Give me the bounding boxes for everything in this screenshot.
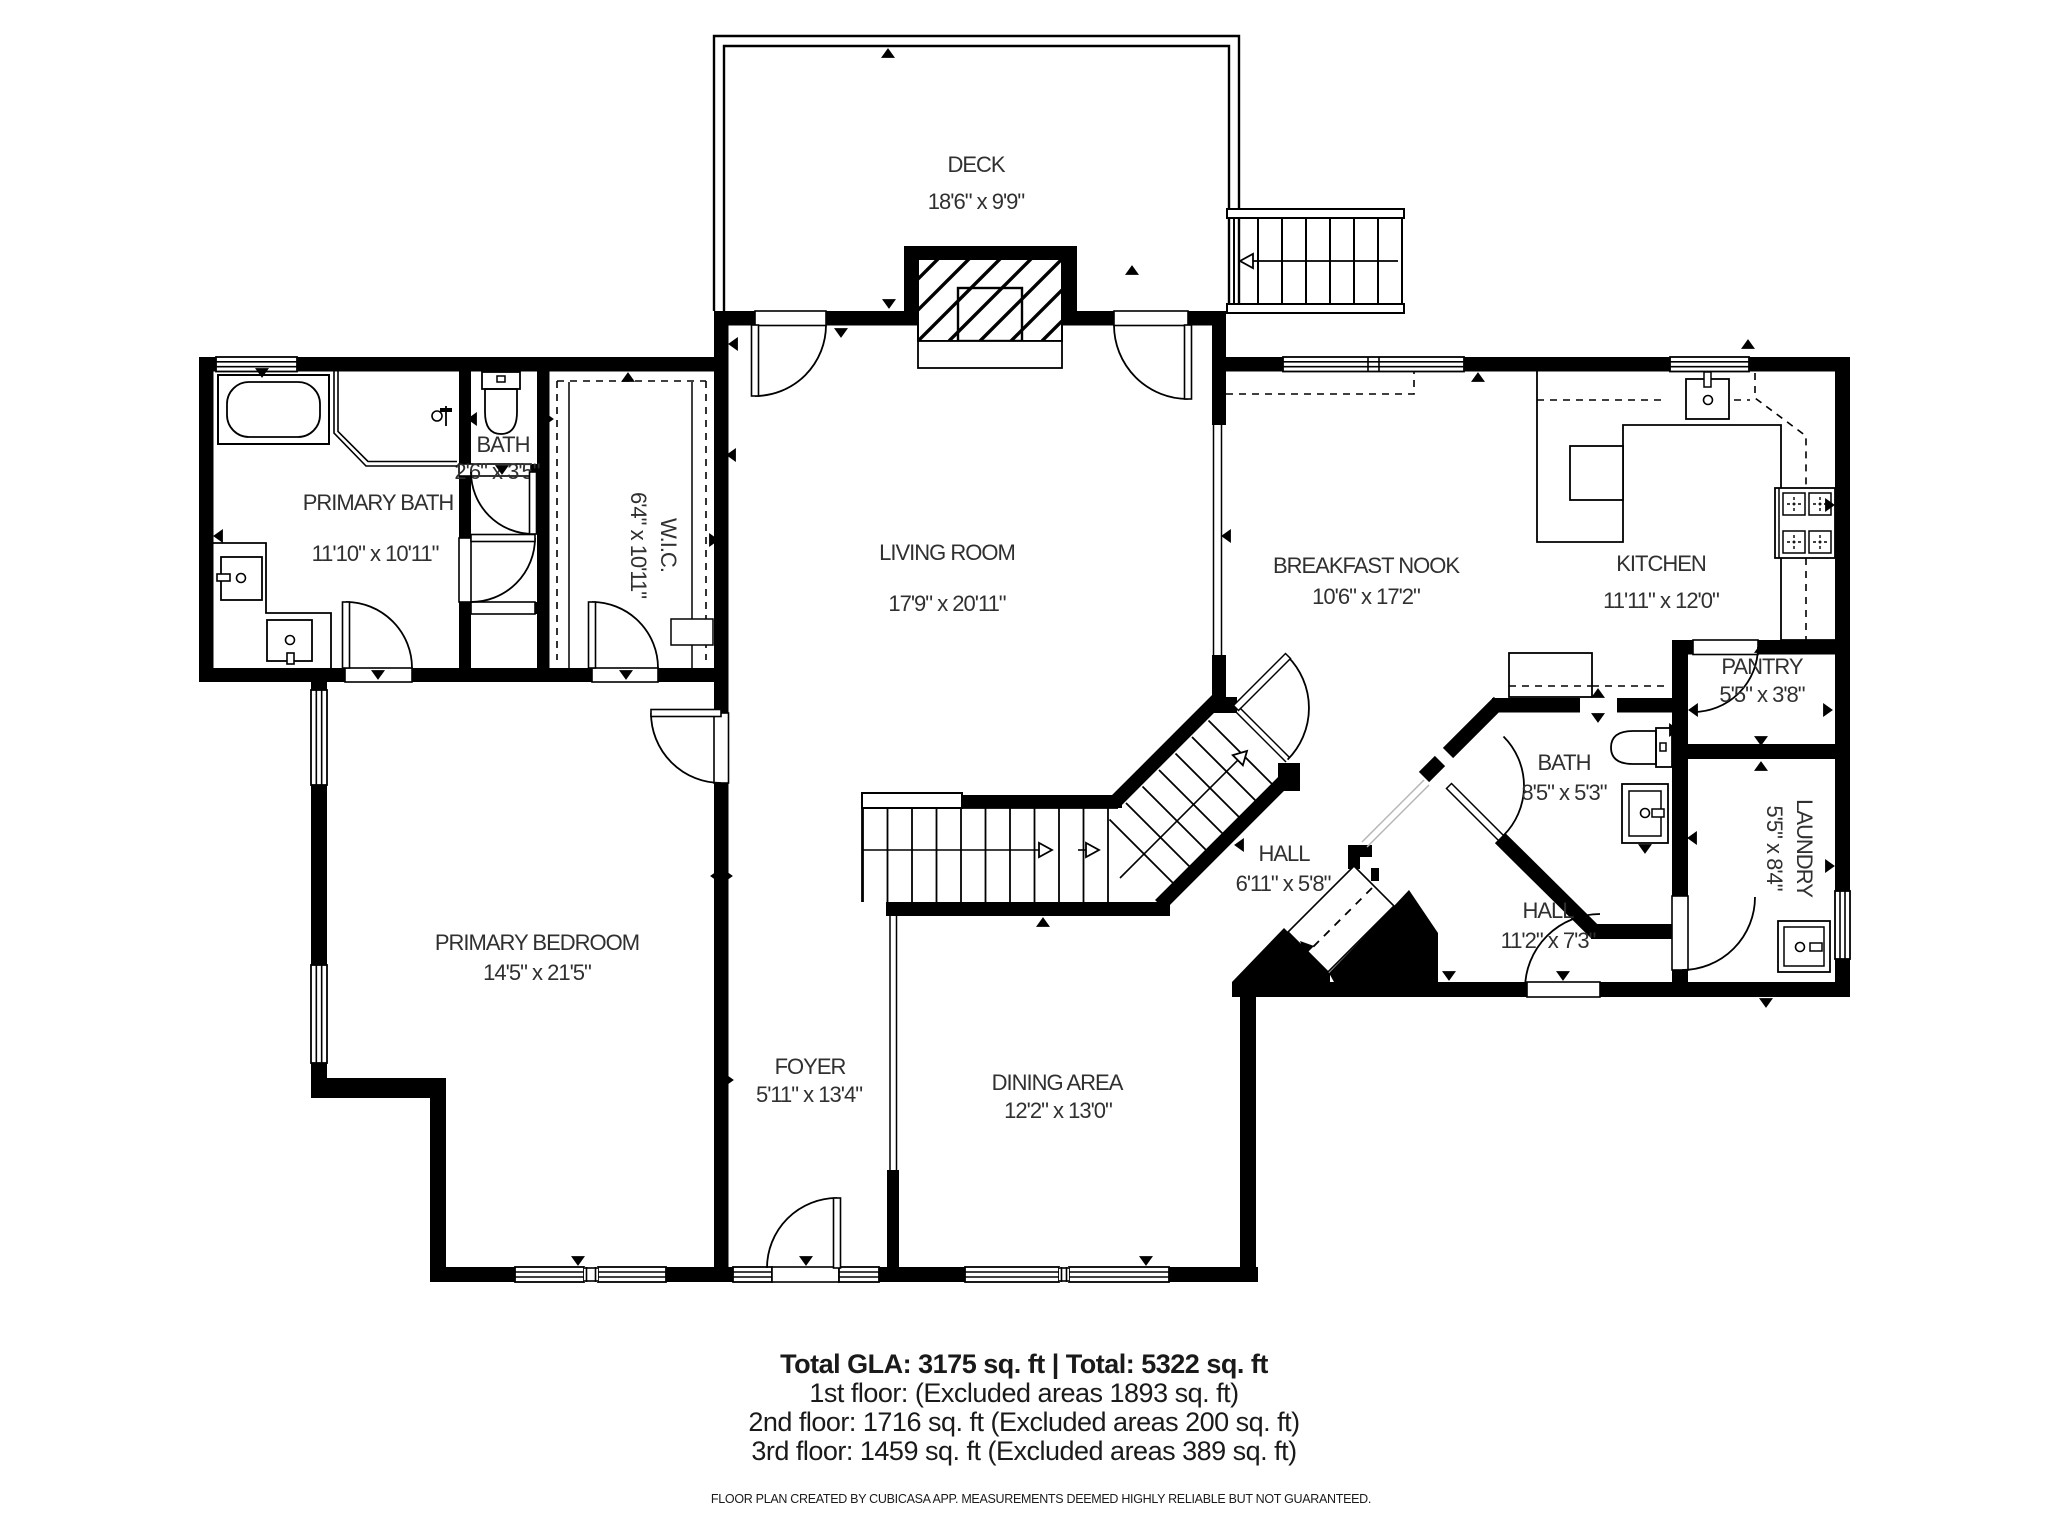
svg-text:LIVING ROOM: LIVING ROOM [879, 540, 1015, 565]
svg-text:BATH: BATH [476, 432, 529, 457]
svg-text:1st floor: (Excluded areas 189: 1st floor: (Excluded areas 1893 sq. ft) [809, 1378, 1238, 1408]
svg-text:5'5" x 3'8": 5'5" x 3'8" [1719, 682, 1804, 707]
svg-text:BATH: BATH [1537, 750, 1590, 775]
svg-text:6'11" x 5'8": 6'11" x 5'8" [1236, 871, 1331, 896]
svg-text:PANTRY: PANTRY [1721, 654, 1804, 679]
svg-text:DECK: DECK [947, 152, 1005, 177]
svg-text:FLOOR PLAN CREATED BY CUBICASA: FLOOR PLAN CREATED BY CUBICASA APP. MEAS… [711, 1492, 1371, 1506]
svg-text:18'6" x 9'9": 18'6" x 9'9" [928, 189, 1025, 214]
svg-text:6'4" x 10'11": 6'4" x 10'11" [626, 492, 651, 598]
svg-text:KITCHEN: KITCHEN [1616, 551, 1706, 576]
svg-text:BREAKFAST NOOK: BREAKFAST NOOK [1273, 553, 1460, 578]
svg-text:2'6" x 3'5": 2'6" x 3'5" [454, 459, 539, 484]
svg-text:11'11" x 12'0": 11'11" x 12'0" [1603, 588, 1719, 613]
svg-text:HALL: HALL [1522, 898, 1574, 923]
svg-text:DINING AREA: DINING AREA [992, 1070, 1124, 1095]
svg-text:5'11" x 13'4": 5'11" x 13'4" [756, 1082, 862, 1107]
svg-text:12'2" x 13'0": 12'2" x 13'0" [1004, 1098, 1112, 1123]
svg-text:HALL: HALL [1258, 841, 1310, 866]
svg-text:FOYER: FOYER [775, 1054, 846, 1079]
svg-text:11'2" x 7'3": 11'2" x 7'3" [1501, 928, 1596, 953]
svg-text:8'5" x 5'3": 8'5" x 5'3" [1521, 780, 1606, 805]
svg-text:PRIMARY BEDROOM: PRIMARY BEDROOM [435, 930, 639, 955]
svg-text:PRIMARY BATH: PRIMARY BATH [303, 490, 454, 515]
svg-text:2nd floor: 1716 sq. ft (Exclud: 2nd floor: 1716 sq. ft (Excluded areas 2… [748, 1407, 1299, 1437]
svg-text:14'5" x 21'5": 14'5" x 21'5" [483, 960, 591, 985]
svg-text:LAUNDRY: LAUNDRY [1792, 799, 1817, 898]
svg-text:17'9" x 20'11": 17'9" x 20'11" [888, 591, 1005, 616]
svg-text:10'6" x 17'2": 10'6" x 17'2" [1312, 584, 1420, 609]
svg-text:W.I.C.: W.I.C. [656, 518, 681, 572]
svg-text:Total GLA: 3175 sq. ft | Total: Total GLA: 3175 sq. ft | Total: 5322 sq.… [780, 1349, 1268, 1379]
svg-text:5'5" x 8'4": 5'5" x 8'4" [1762, 805, 1787, 890]
svg-text:11'10" x 10'11": 11'10" x 10'11" [312, 541, 439, 566]
svg-text:3rd floor: 1459 sq. ft (Exclud: 3rd floor: 1459 sq. ft (Excluded areas 3… [751, 1436, 1296, 1466]
